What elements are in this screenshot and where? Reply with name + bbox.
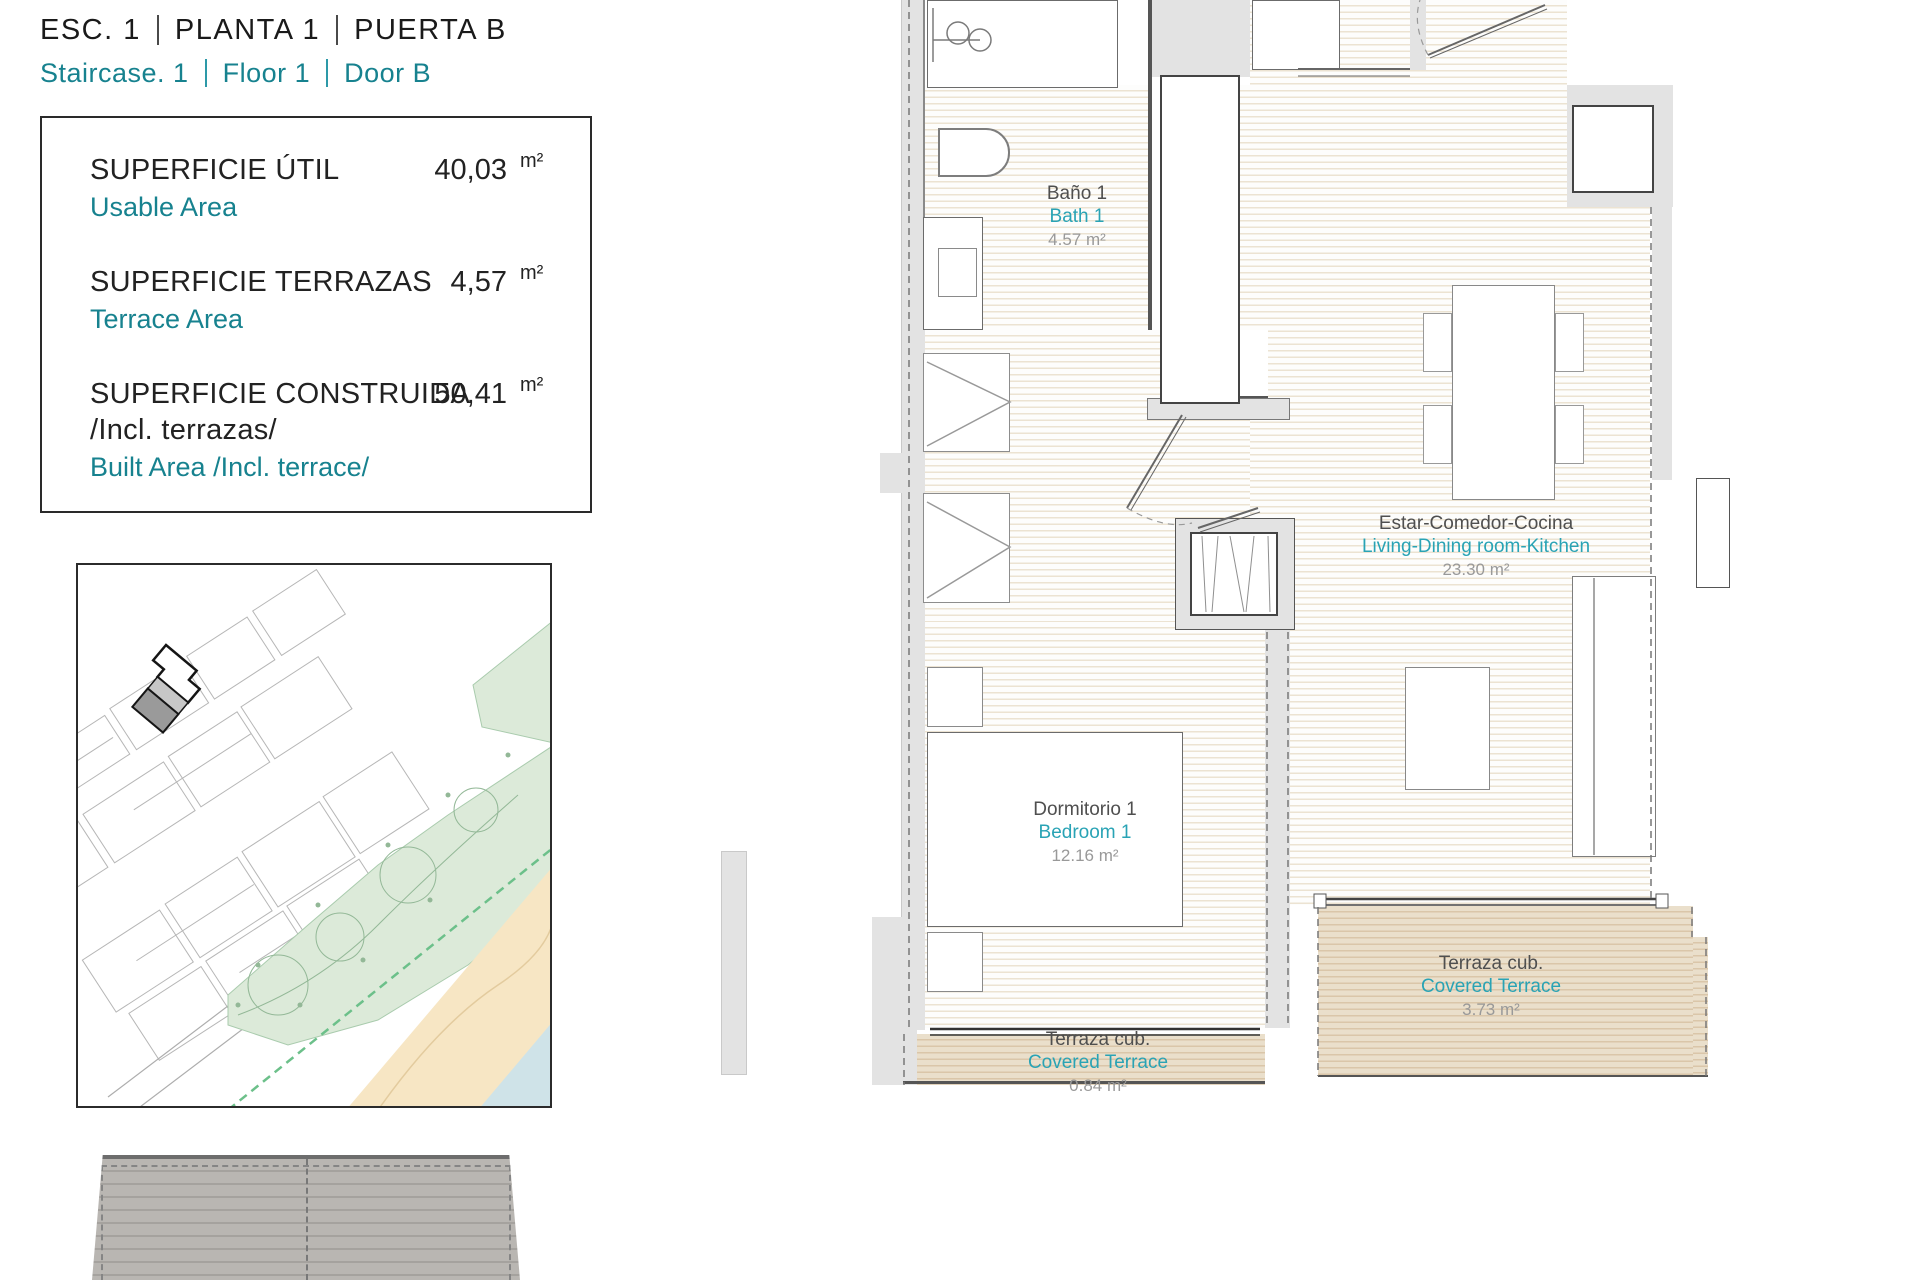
exterior-wall-fragment — [721, 851, 747, 1075]
room-label-bath: Baño 1 Bath 1 4.57 m² — [1047, 182, 1107, 251]
site-location-map — [76, 563, 552, 1108]
room-name-es: Estar-Comedor-Cocina — [1362, 512, 1590, 535]
living-terrace-window — [1314, 894, 1668, 908]
terrace-area-value: 4,57 — [372, 266, 507, 299]
page-subtitle: Staircase. 1Floor 1Door B — [40, 58, 431, 89]
title-divider — [157, 15, 159, 45]
subtitle-staircase: Staircase. 1 — [40, 58, 189, 88]
room-name-es: Terraza cub. — [1421, 952, 1561, 975]
built-area-label-extra: /Incl. terrazas/ — [90, 414, 277, 447]
usable-area-unit: m² — [520, 150, 543, 173]
subtitle-divider — [326, 59, 328, 87]
room-label-terrace-bottom: Terraza cub. Covered Terrace 0.84 m² — [1028, 1028, 1168, 1097]
usable-area-value: 40,03 — [372, 154, 507, 187]
subtitle-floor: Floor 1 — [223, 58, 311, 88]
room-name-en: Covered Terrace — [1028, 1051, 1168, 1074]
plan-linework — [870, 0, 1740, 1088]
page-title: ESC. 1PLANTA 1PUERTA B — [40, 14, 507, 47]
built-area-unit: m² — [520, 374, 543, 397]
kitchen-window — [1298, 69, 1410, 76]
shaft-hatch-lines — [1202, 536, 1270, 612]
wardrobe-door-lines — [927, 362, 1010, 598]
room-name-es: Dormitorio 1 — [1033, 798, 1136, 821]
room-area: 23.30 m² — [1362, 558, 1590, 581]
subtitle-divider — [205, 59, 207, 87]
usable-area-label-es: SUPERFICIE ÚTIL — [90, 154, 339, 187]
title-planta: PLANTA 1 — [175, 14, 320, 46]
room-name-en: Bath 1 — [1047, 205, 1107, 228]
entry-door — [1127, 415, 1192, 525]
room-name-en: Bedroom 1 — [1033, 821, 1136, 844]
title-esc: ESC. 1 — [40, 14, 141, 46]
floor-plan: Baño 1 Bath 1 4.57 m² Estar-Comedor-Coci… — [870, 0, 1740, 1088]
room-label-terrace-right: Terraza cub. Covered Terrace 3.73 m² — [1421, 952, 1561, 1021]
subtitle-door: Door B — [344, 58, 431, 88]
usable-area-label-en: Usable Area — [90, 192, 237, 223]
roof-center-dashed-line — [306, 1159, 308, 1280]
room-label-living: Estar-Comedor-Cocina Living-Dining room-… — [1362, 512, 1590, 581]
room-name-en: Living-Dining room-Kitchen — [1362, 535, 1590, 558]
room-area: 0.84 m² — [1028, 1074, 1168, 1097]
title-puerta: PUERTA B — [354, 14, 507, 46]
area-measurements-box: SUPERFICIE ÚTIL 40,03 m² Usable Area SUP… — [40, 116, 592, 513]
site-map-drawing — [78, 565, 552, 1108]
room-name-es: Baño 1 — [1047, 182, 1107, 205]
roof-plan-fragment — [92, 1155, 520, 1280]
top-door — [1417, 0, 1547, 58]
room-name-en: Covered Terrace — [1421, 975, 1561, 998]
room-area: 12.16 m² — [1033, 844, 1136, 867]
room-area: 4.57 m² — [1047, 228, 1107, 251]
room-label-bedroom: Dormitorio 1 Bedroom 1 12.16 m² — [1033, 798, 1136, 867]
title-divider — [336, 15, 338, 45]
terrace-area-label-en: Terrace Area — [90, 304, 243, 335]
faucet-icon — [933, 8, 991, 62]
room-name-es: Terraza cub. — [1028, 1028, 1168, 1051]
map-highlight-building — [122, 645, 208, 733]
bedroom-door — [1198, 508, 1260, 532]
built-area-value: 50,41 — [372, 378, 507, 411]
built-area-label-en: Built Area /Incl. terrace/ — [90, 452, 369, 483]
terrace-area-unit: m² — [520, 262, 543, 285]
room-area: 3.73 m² — [1421, 998, 1561, 1021]
